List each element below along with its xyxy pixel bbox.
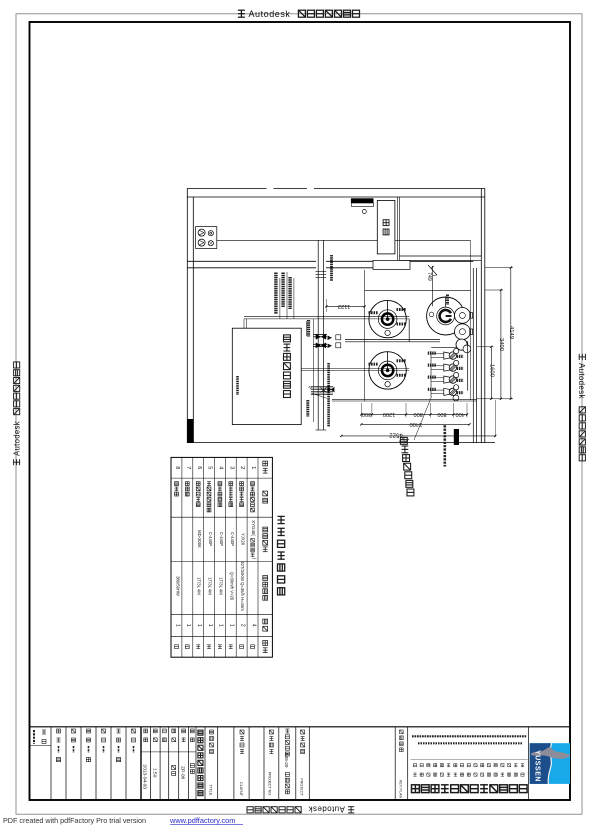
svg-text:Q=36m/h V=20: Q=36m/h V=20 [229, 572, 234, 601]
svg-text:ZP-08: ZP-08 [180, 766, 186, 779]
svg-text:2: 2 [239, 466, 245, 469]
svg-text:CLIENT: CLIENT [239, 782, 244, 797]
svg-text:4149: 4149 [508, 326, 514, 339]
svg-text:4: 4 [217, 466, 223, 469]
svg-text:1: 1 [218, 624, 224, 627]
svg-text:4: 4 [250, 624, 256, 627]
svg-text:800: 800 [437, 411, 446, 417]
svg-text:1: 1 [185, 624, 191, 627]
svg-text:7: 7 [185, 466, 191, 469]
svg-text:1: 1 [250, 466, 256, 469]
svg-text:1:50: 1:50 [151, 768, 157, 778]
svg-text:1: 1 [174, 624, 180, 627]
svg-text:3400: 3400 [409, 421, 422, 427]
svg-text:KEY PLAN: KEY PLAN [398, 780, 402, 799]
svg-text:5: 5 [207, 466, 213, 469]
svg-text:400: 400 [456, 411, 465, 417]
svg-text:800: 800 [414, 411, 423, 417]
svg-text:YUSSEN: YUSSEN [534, 750, 541, 782]
svg-text:1T/3L 4M: 1T/3L 4M [197, 577, 202, 595]
svg-text:1T/3L 4M: 1T/3L 4M [218, 577, 223, 595]
svg-text:A06-20: A06-20 [284, 753, 289, 768]
svg-text:1T/3L 4M: 1T/3L 4M [208, 577, 213, 595]
svg-text:TITLE: TITLE [209, 785, 214, 796]
svg-text:1200: 1200 [383, 411, 395, 417]
svg-text:C-440P: C-440P [208, 532, 213, 546]
svg-text:2: 2 [239, 624, 245, 627]
svg-text:1122: 1122 [338, 303, 350, 309]
svg-text:YJX20: YJX20 [241, 533, 246, 546]
svg-text:Autodesk: Autodesk [308, 805, 345, 814]
svg-text:749: 749 [426, 272, 432, 281]
svg-text:PDF created with pdfFactory Pr: PDF created with pdfFactory Pro trial ve… [3, 816, 146, 825]
svg-text:Autodesk: Autodesk [13, 421, 22, 456]
svg-text:PROJECT: PROJECT [300, 778, 304, 796]
svg-text:C-440P: C-440P [230, 532, 235, 546]
svg-text:Autodesk: Autodesk [577, 363, 586, 399]
svg-text:PROJECT NO.: PROJECT NO. [267, 772, 271, 796]
svg-text:3400: 3400 [498, 338, 504, 351]
svg-text:1: 1 [229, 624, 235, 627]
svg-text:MD-300K: MD-300K [197, 530, 202, 548]
svg-text:380/50HW: 380/50HW [175, 576, 180, 596]
svg-text:2013-04-03: 2013-04-03 [142, 764, 148, 789]
svg-text:40T/34KW Q=36/h H=46m: 40T/34KW Q=36/h H=46m [240, 561, 245, 611]
svg-text:1: 1 [207, 624, 213, 627]
svg-text:C-440P: C-440P [219, 532, 224, 546]
svg-text:XYG40(: XYG40( [251, 520, 256, 536]
svg-text:6: 6 [196, 466, 202, 469]
svg-text:4522: 4522 [389, 431, 403, 437]
svg-text:300: 300 [362, 411, 371, 417]
svg-text:3: 3 [228, 466, 234, 469]
svg-text:1: 1 [196, 624, 202, 627]
svg-text:1600: 1600 [489, 364, 495, 377]
svg-text:8: 8 [174, 466, 180, 469]
svg-text:www.pdffactory.com: www.pdffactory.com [169, 816, 235, 825]
svg-text:Autodesk: Autodesk [249, 9, 291, 19]
